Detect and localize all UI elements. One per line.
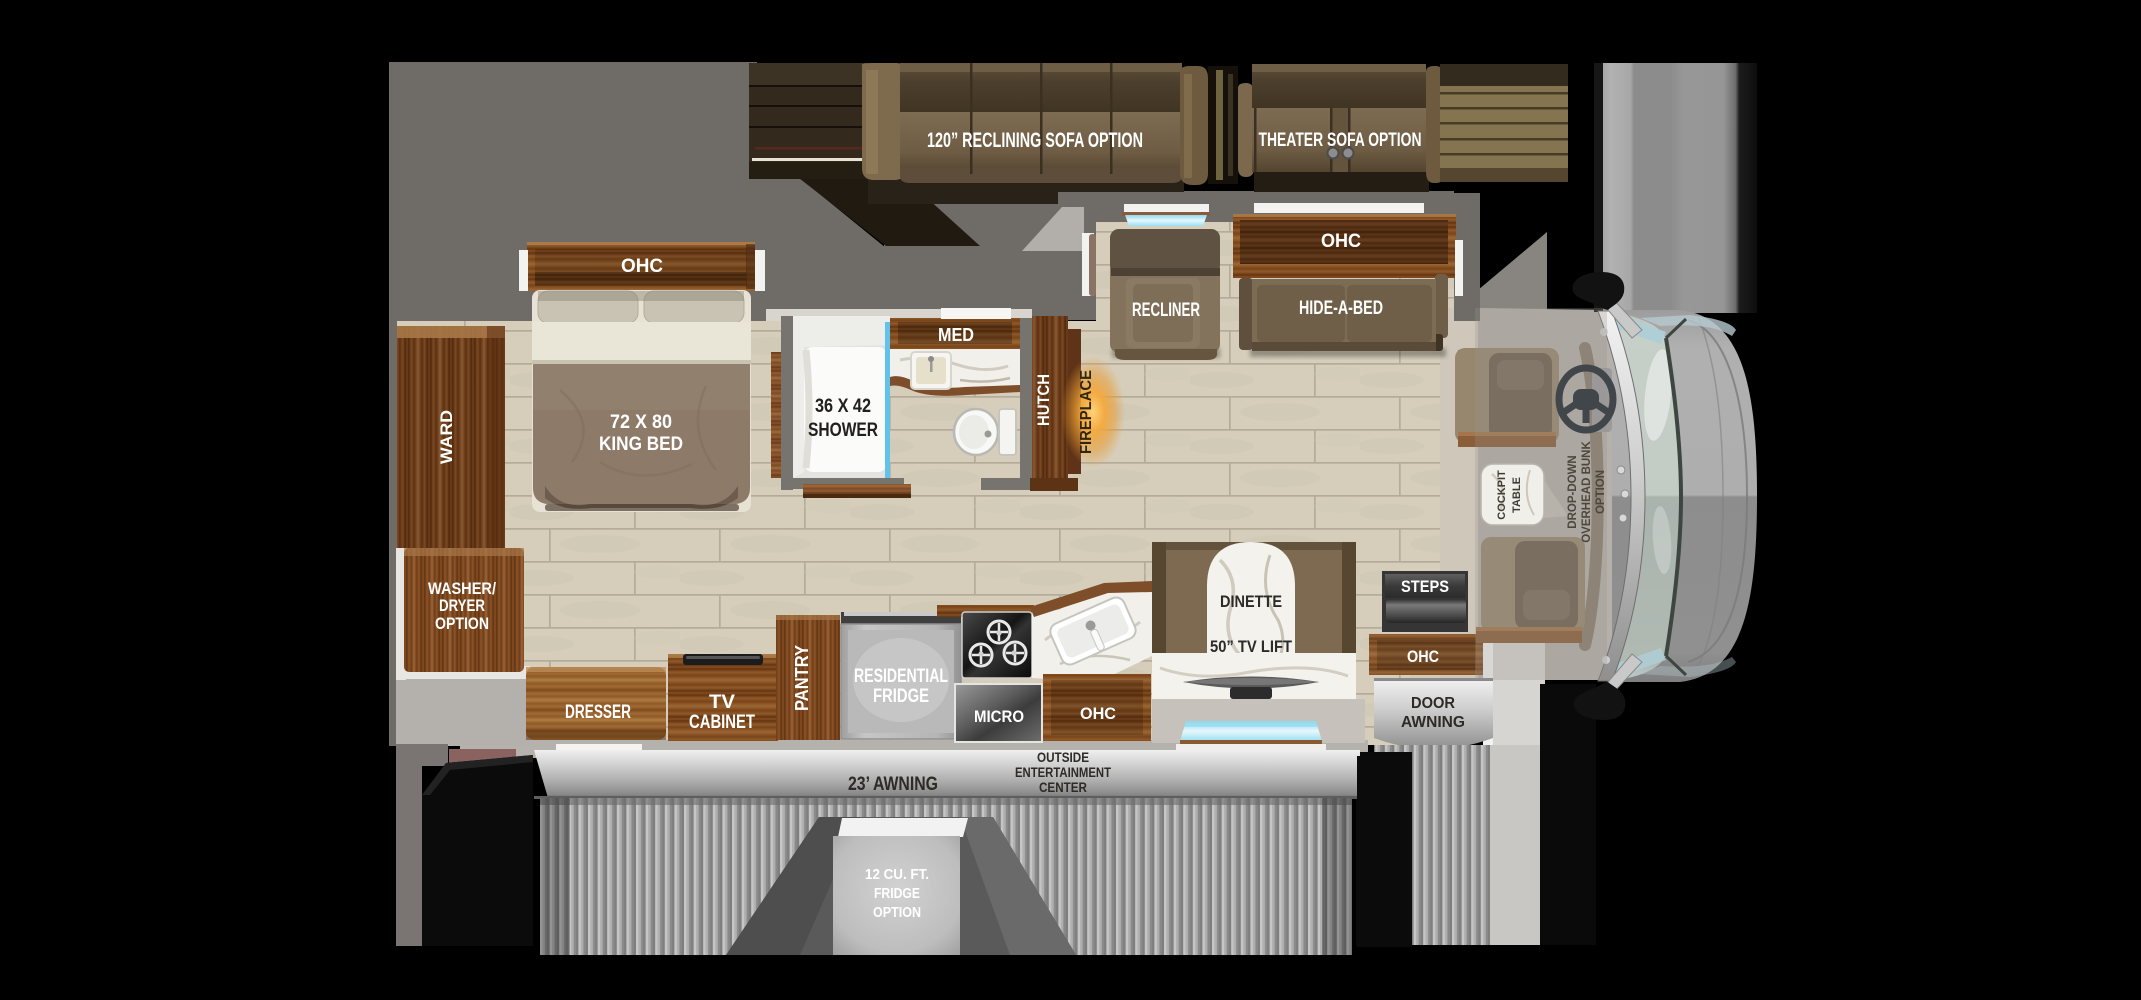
svg-text:FRIDGE: FRIDGE (874, 886, 920, 902)
svg-text:OHC: OHC (1407, 647, 1439, 666)
svg-text:RECLINER: RECLINER (1132, 300, 1200, 321)
svg-text:MED: MED (938, 325, 974, 345)
svg-text:MICRO: MICRO (974, 708, 1024, 726)
svg-text:TABLE: TABLE (1511, 477, 1523, 513)
svg-text:CABINET: CABINET (689, 712, 755, 733)
svg-text:WASHER/: WASHER/ (428, 580, 496, 598)
svg-text:50” TV LIFT: 50” TV LIFT (1210, 637, 1293, 656)
svg-text:OHC: OHC (621, 256, 663, 277)
svg-text:12 CU. FT.: 12 CU. FT. (865, 867, 929, 883)
svg-text:DOOR: DOOR (1411, 695, 1455, 712)
svg-text:KING BED: KING BED (599, 434, 683, 455)
svg-text:OVERHEAD BUNK: OVERHEAD BUNK (1581, 441, 1593, 543)
svg-text:OPTION: OPTION (873, 905, 921, 921)
svg-text:RESIDENTIAL: RESIDENTIAL (854, 666, 948, 687)
svg-text:36 X 42: 36 X 42 (815, 396, 871, 417)
svg-text:COCKPIT: COCKPIT (1496, 470, 1508, 520)
svg-text:OUTSIDE: OUTSIDE (1037, 750, 1089, 765)
svg-text:OPTION: OPTION (435, 615, 489, 633)
svg-text:WARD: WARD (437, 410, 456, 464)
svg-text:OPTION: OPTION (1595, 470, 1607, 514)
svg-text:STEPS: STEPS (1401, 577, 1449, 596)
svg-text:HIDE-A-BED: HIDE-A-BED (1299, 298, 1383, 319)
svg-text:OHC: OHC (1080, 704, 1116, 723)
svg-text:TV: TV (709, 692, 735, 713)
svg-text:DRESSER: DRESSER (565, 702, 631, 723)
svg-text:120” RECLINING SOFA OPTION: 120” RECLINING SOFA OPTION (927, 129, 1143, 152)
svg-text:PANTRY: PANTRY (792, 645, 812, 711)
svg-text:SHOWER: SHOWER (808, 420, 878, 441)
svg-text:DINETTE: DINETTE (1220, 592, 1282, 611)
svg-text:AWNING: AWNING (1401, 714, 1465, 731)
svg-text:72 X 80: 72 X 80 (610, 412, 672, 433)
svg-text:DRYER: DRYER (439, 597, 485, 615)
svg-text:23’ AWNING: 23’ AWNING (848, 774, 938, 795)
svg-text:DROP-DOWN: DROP-DOWN (1567, 455, 1579, 528)
svg-text:FRIDGE: FRIDGE (873, 686, 929, 707)
svg-text:FIREPLACE: FIREPLACE (1078, 370, 1095, 454)
svg-text:HUTCH: HUTCH (1034, 374, 1053, 426)
svg-text:CENTER: CENTER (1039, 780, 1087, 795)
svg-text:OHC: OHC (1321, 231, 1361, 252)
svg-text:THEATER SOFA OPTION: THEATER SOFA OPTION (1259, 130, 1422, 151)
svg-text:ENTERTAINMENT: ENTERTAINMENT (1015, 765, 1112, 780)
